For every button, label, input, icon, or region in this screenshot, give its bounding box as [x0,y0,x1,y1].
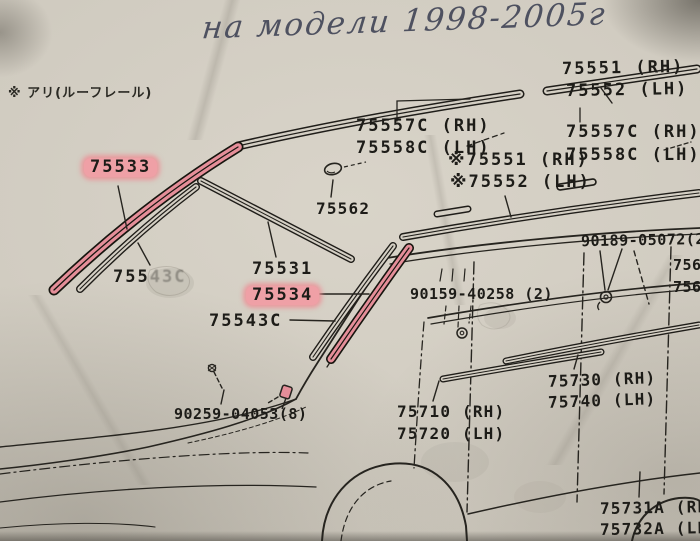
part-label-75533-highlighted: 75533 [84,158,157,177]
part-label-90189-05072: 90189-05072(2) [581,231,700,250]
part-label-75731a-rh: 75731A (RH) [600,498,700,518]
part-label-756-truncated-1: 756 [673,257,700,274]
part-label-75551-rh-star: ※75551 (RH) [448,151,589,170]
part-label-75551-rh-top: 75551 (RH) [562,58,685,79]
part-label-75552-lh-top: 75552 (LH) [566,80,689,101]
part-label-75543c-faded-strong: 755 [113,267,150,287]
part-label-756-truncated-2: 756 [673,279,700,296]
part-label-75730-rh: 75730 (RH) [548,369,657,391]
clip-75562-icon [323,162,366,177]
part-label-75720-lh: 75720 (LH) [397,425,505,443]
part-label-90159-40258: 90159-40258 (2) [410,286,553,303]
part-label-75732a-lh: 75732A (LH) [600,519,700,539]
part-label-75710-rh: 75710 (RH) [397,403,505,421]
strip-body-side-rear [506,325,699,361]
part-label-75543c: 75543C [209,312,282,331]
part-label-75557c-rh-right: 75557C (RH) [566,123,700,142]
bolt-90259-icon [208,364,216,371]
part-label-75562: 75562 [316,200,370,218]
strip-b-pillar-highlighted [331,248,409,359]
roof-rail-note: ※ アリ(ルーフレール) [8,82,152,101]
part-label-75531: 75531 [252,260,313,279]
part-label-75534-highlighted: 75534 [246,286,319,305]
parts-catalog-photo: на модели 1998-2005г ※ アリ(ルーフレール) 75551 … [0,0,700,541]
part-label-75740-lh: 75740 (LH) [548,390,657,412]
part-label-75543c-faded-weak: 43C [150,267,187,287]
part-label-90259-04053: 90259-04053(8) [174,406,307,423]
part-label-75543c-faded: 75543C [113,268,186,287]
part-label-75557c-rh-left: 75557C (RH) [356,117,491,136]
strip-b-pillar-plain [313,246,393,357]
strip-header [201,181,351,259]
clip-90189-icon [598,292,612,311]
part-label-75552-lh-star: ※75552 (LH) [450,173,591,192]
clip-90159-icon [457,328,467,338]
